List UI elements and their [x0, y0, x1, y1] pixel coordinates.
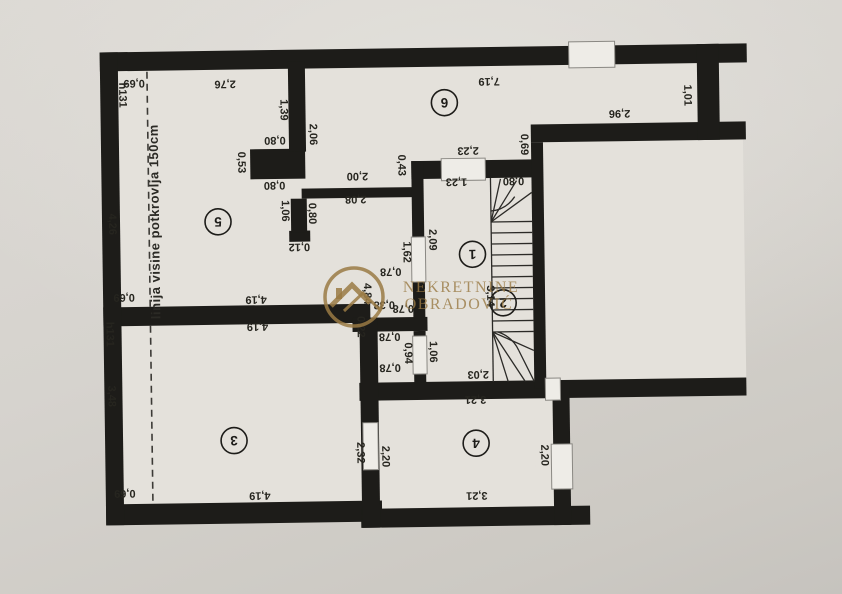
dimension-label: 1,06 — [279, 200, 291, 222]
dimension-label: 0,69 — [518, 134, 530, 156]
watermark-chimney — [336, 288, 342, 299]
dimension-label: 1,01 — [681, 84, 693, 106]
dimension-label: 2,06 — [307, 124, 319, 146]
watermark-text-line1: NEKRETNINE — [403, 279, 519, 296]
dimension-label: 0,80 — [264, 179, 286, 191]
dimension-label: 0,80 — [503, 175, 525, 187]
floor-plan-photo: 123456 2,760,69h1314,261,392,060,800,530… — [0, 0, 842, 594]
dimension-label: 7,19 — [478, 75, 500, 87]
dimension-label: 4,19 — [245, 293, 267, 305]
dimension-label: 3,21 — [466, 489, 488, 501]
dimension-label: 0,78 — [379, 361, 401, 373]
dimension-label: 2,00 — [347, 170, 369, 182]
dimension-label: 1,39 — [277, 99, 289, 121]
dimension-label: 0,69 — [113, 291, 135, 303]
dimension-label: 0,53 — [235, 152, 247, 174]
dimension-label: 4,26 — [106, 213, 118, 235]
room-number: 1 — [468, 247, 476, 262]
dimension-label: 3,48 — [105, 386, 117, 408]
dimension-label: 2,09 — [426, 229, 438, 251]
room-number: 6 — [440, 95, 448, 110]
dimension-label: 2,20 — [538, 444, 550, 466]
room-number: 5 — [214, 214, 222, 229]
watermark-text-line2: OBRADOVIĆ — [405, 294, 514, 313]
dimension-label: 1,06 — [427, 341, 439, 363]
dimension-label: h131 — [103, 322, 115, 347]
dimension-label: 0,43 — [395, 154, 407, 176]
dimension-label: 4,19 — [249, 489, 271, 501]
dimension-label: 2,23 — [457, 144, 479, 156]
dimension-label: 0,78 — [379, 330, 401, 342]
dimension-label: 2,20 — [379, 446, 391, 468]
dimension-label: 0,80 — [306, 203, 318, 225]
dimension-label: h131 — [116, 83, 128, 108]
dimension-label: 0,12 — [289, 241, 311, 253]
room-number: 3 — [230, 433, 238, 448]
attic-line-label: linija visine potkrovlja 150cm — [146, 124, 164, 319]
dimension-label: 3,21 — [465, 393, 487, 405]
floor-plan-svg: 123456 2,760,69h1314,261,392,060,800,530… — [0, 0, 842, 594]
dimension-label: 1,23 — [446, 175, 468, 187]
dimension-label: 0,94 — [402, 342, 414, 364]
dimension-label: 1,62 — [400, 241, 412, 263]
dimension-label: 0,80 — [264, 134, 286, 146]
dimension-label: 2,76 — [214, 78, 236, 90]
room-number: 4 — [472, 436, 480, 451]
dimension-label: 0,78 — [380, 265, 402, 277]
dimension-label: 0,69 — [114, 487, 136, 499]
dimension-label: 4,19 — [247, 320, 269, 332]
dimension-label: 2,32 — [354, 442, 366, 464]
dimension-label: 2,08 — [345, 193, 367, 205]
dimension-label: 2,96 — [609, 107, 631, 119]
dimension-label: 2,03 — [467, 368, 489, 380]
